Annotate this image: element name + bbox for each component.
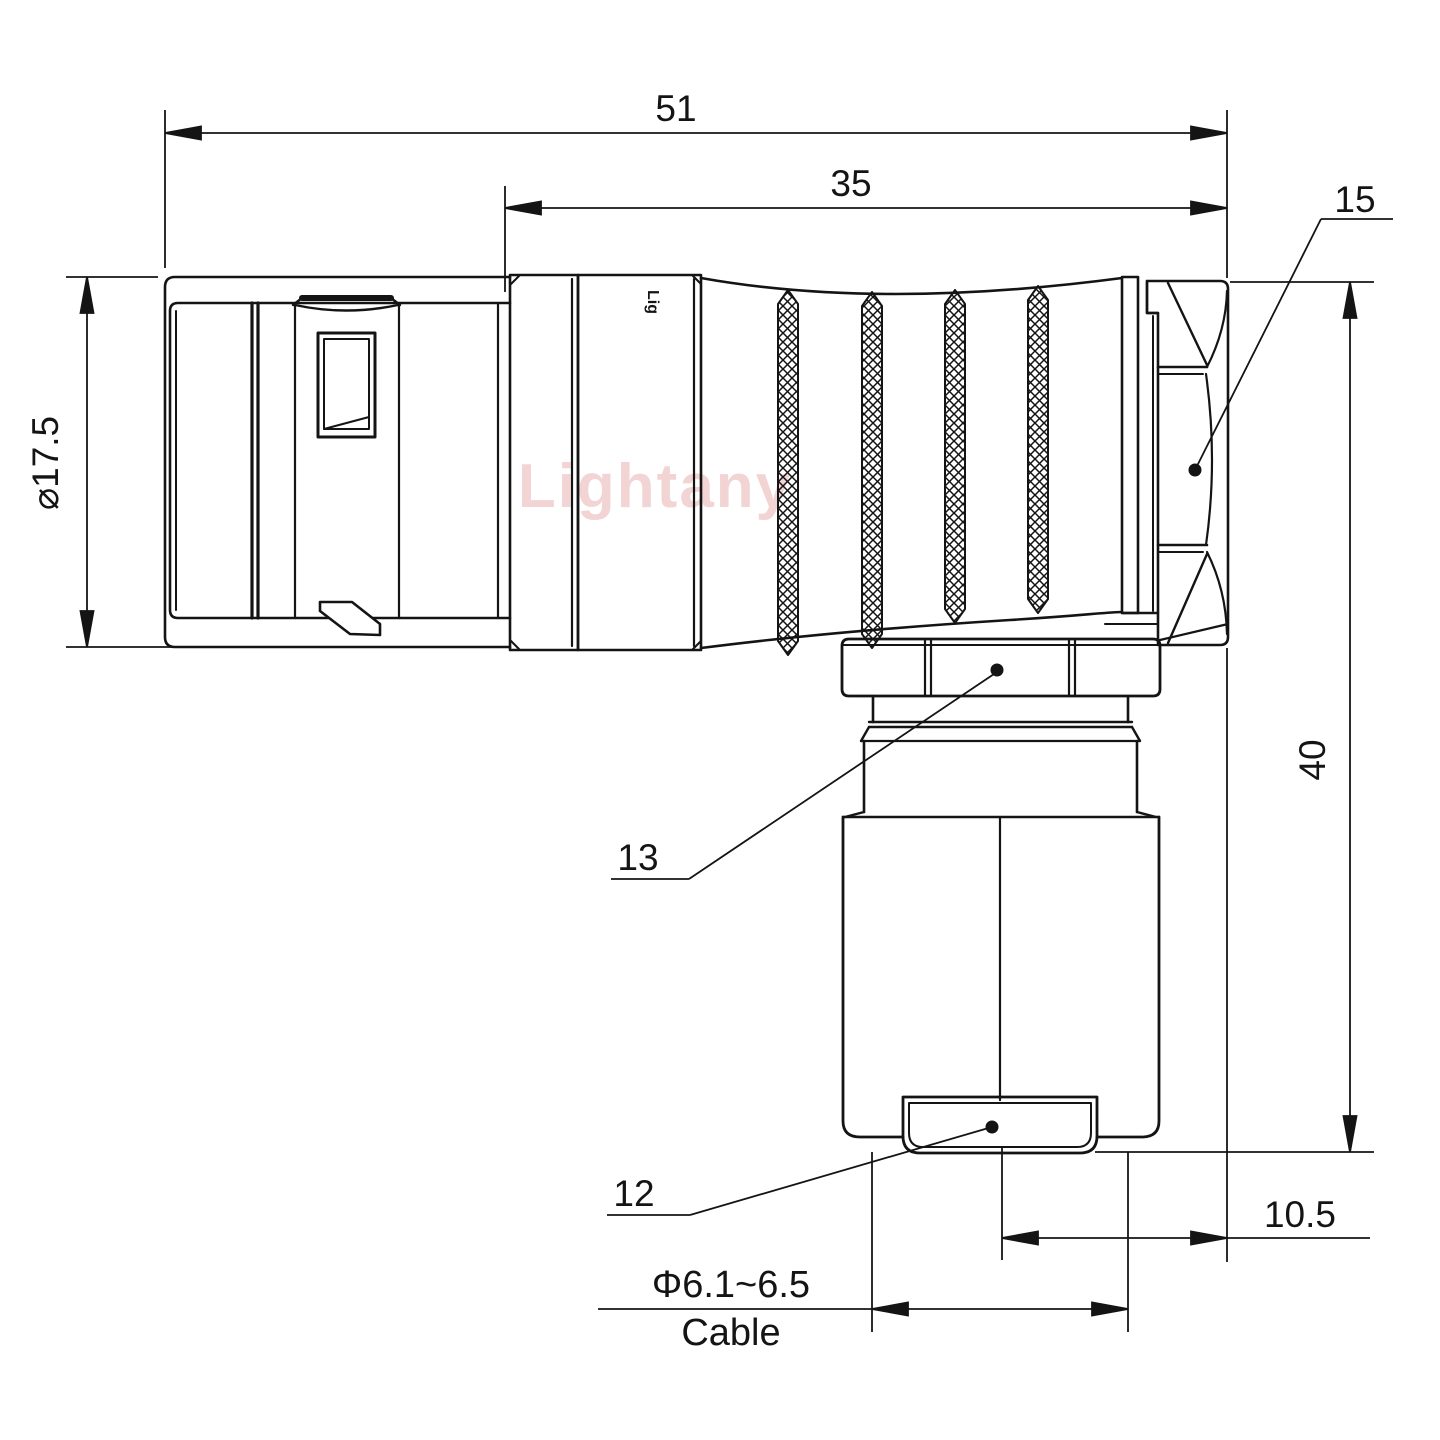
ref-13-text: 13 bbox=[617, 837, 658, 878]
dim-diameter-text: ⌀17.5 bbox=[25, 416, 66, 510]
dim-51-text: 51 bbox=[655, 88, 696, 129]
drawing-canvas: Lightany bbox=[0, 0, 1440, 1440]
body-marking-text: Lig bbox=[644, 290, 661, 314]
technical-drawing: Lightany bbox=[0, 0, 1440, 1440]
background bbox=[0, 0, 1440, 1440]
cable-word-text: Cable bbox=[681, 1312, 780, 1354]
dim-40-text: 40 bbox=[1292, 739, 1333, 780]
dim-10-5-text: 10.5 bbox=[1264, 1194, 1336, 1235]
ref-12-text: 12 bbox=[613, 1173, 654, 1214]
watermark-text: Lightany bbox=[518, 452, 792, 521]
cable-range-text: Φ6.1~6.5 bbox=[652, 1264, 810, 1306]
ref-15-text: 15 bbox=[1334, 179, 1375, 220]
dim-35-text: 35 bbox=[830, 163, 871, 204]
